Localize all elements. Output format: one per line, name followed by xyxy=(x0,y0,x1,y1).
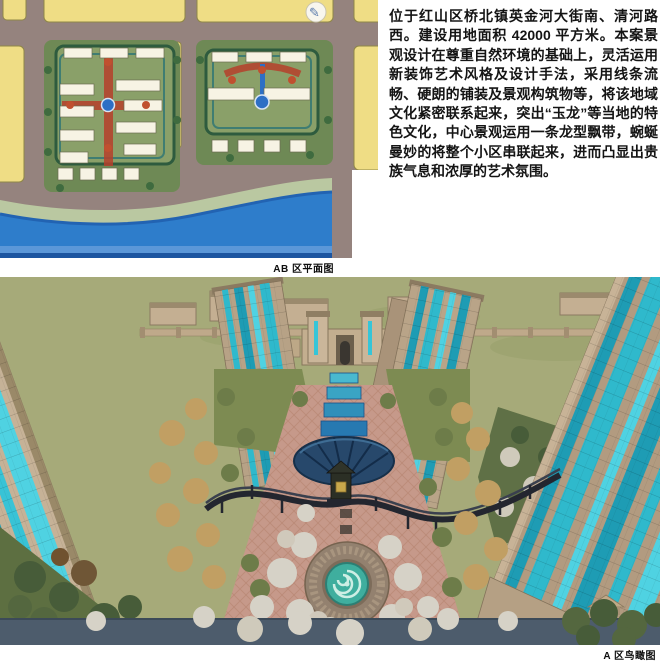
svg-text:✎: ✎ xyxy=(309,5,320,20)
aerial-render-svg xyxy=(0,277,660,645)
presentation-page: ✎ AB 区平面图 位于红山区桥北镇英金河大街南、清河路西。建设用地面积 420… xyxy=(0,0,660,661)
render-caption: A 区鸟瞰图 xyxy=(0,647,656,661)
site-plan-image: ✎ xyxy=(0,0,378,258)
pencil-icon: ✎ xyxy=(306,2,326,22)
site-plan-svg: ✎ xyxy=(0,0,378,258)
plan-caption: AB 区平面图 xyxy=(0,260,334,275)
plan-water-node-a xyxy=(102,99,115,112)
project-description: 位于红山区桥北镇英金河大街南、清河路西。建设用地面积 42000 平方米。本案景… xyxy=(389,7,658,182)
aerial-render-image xyxy=(0,277,660,645)
plan-water-node-b xyxy=(255,95,269,109)
plan-compound-a xyxy=(56,46,174,180)
